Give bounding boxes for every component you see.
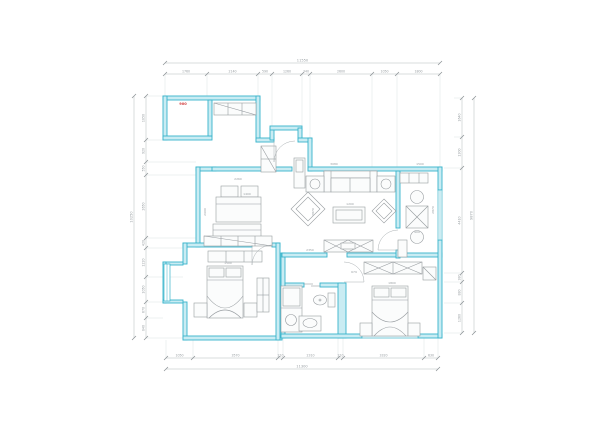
dining-table xyxy=(216,197,261,222)
svg-text:1050: 1050 xyxy=(175,354,183,358)
svg-text:1760: 1760 xyxy=(182,70,190,74)
svg-text:920: 920 xyxy=(142,148,146,154)
svg-text:550: 550 xyxy=(142,165,146,171)
coffee-table xyxy=(333,207,365,223)
svg-text:420: 420 xyxy=(142,240,146,246)
wall-foyer-left xyxy=(163,96,167,140)
dining-bench xyxy=(213,224,261,237)
svg-text:1050: 1050 xyxy=(380,70,388,74)
bath-sink xyxy=(299,316,321,331)
dim-chain-right: 16401300441038088012609870 xyxy=(444,96,476,335)
bedroom1-nightstand-1 xyxy=(194,303,207,317)
rug-diamond xyxy=(291,192,325,226)
master-nightstand-1 xyxy=(360,323,372,336)
wall-entry-alcove-top xyxy=(270,126,302,130)
bath-sliding-door xyxy=(304,284,320,286)
svg-text:1220: 1220 xyxy=(142,258,146,266)
svg-text:11300: 11300 xyxy=(296,365,308,369)
wall-right-wall-b xyxy=(438,240,442,338)
svg-text:210: 210 xyxy=(277,354,283,358)
side-table-right xyxy=(377,176,395,192)
tv-cabinet xyxy=(324,240,373,252)
svg-text:2870: 2870 xyxy=(431,206,435,214)
svg-text:2140: 2140 xyxy=(228,70,236,74)
svg-text:11550: 11550 xyxy=(297,59,309,63)
svg-text:900: 900 xyxy=(414,230,420,234)
foyer-wardrobe xyxy=(214,103,256,115)
svg-text:1500: 1500 xyxy=(224,261,232,265)
svg-text:590: 590 xyxy=(262,70,268,74)
sofa xyxy=(324,171,377,192)
svg-text:1800: 1800 xyxy=(414,70,422,74)
tearoom-side-cabinet xyxy=(398,240,407,257)
svg-text:679: 679 xyxy=(351,270,357,274)
side-table-left xyxy=(306,176,324,192)
bedroom1-nightstand-2 xyxy=(244,303,257,317)
corridor-tall-cabinet xyxy=(294,158,305,188)
wall-bedroom1-left-b xyxy=(183,302,187,340)
svg-text:3870: 3870 xyxy=(311,208,315,216)
toilet xyxy=(314,293,336,307)
svg-text:1800: 1800 xyxy=(388,281,396,285)
svg-text:1260: 1260 xyxy=(458,314,462,322)
wall-dining-top xyxy=(212,167,292,171)
svg-text:1640: 1640 xyxy=(458,113,462,121)
dim-chain-bottom: 105035702102310210332063011300 xyxy=(164,338,440,371)
dim-chain-top: 17602140590126034026001050180011550 xyxy=(163,59,442,172)
svg-text:3570: 3570 xyxy=(231,354,239,358)
svg-text:2600: 2600 xyxy=(337,70,345,74)
wall-tearoom-partition-a xyxy=(396,171,400,228)
svg-text:1500: 1500 xyxy=(416,162,424,166)
svg-text:900: 900 xyxy=(179,102,187,106)
svg-text:2310: 2310 xyxy=(306,354,314,358)
entry-red-tag: 900 xyxy=(179,102,187,106)
bedroom1-bed xyxy=(207,266,243,318)
floorplan-page: 1760214059012603402600105018001155010503… xyxy=(0,0,600,433)
tearoom-door xyxy=(378,230,398,250)
plant-diamond xyxy=(372,199,396,223)
tearoom-chair-1 xyxy=(411,191,424,204)
master-ac xyxy=(423,267,436,280)
svg-text:670: 670 xyxy=(142,307,146,313)
svg-text:1400: 1400 xyxy=(243,192,251,196)
svg-text:2650: 2650 xyxy=(142,202,146,210)
svg-text:630: 630 xyxy=(428,354,434,358)
svg-text:380: 380 xyxy=(458,274,462,280)
bedroom1-wardrobe xyxy=(257,278,269,312)
dining-chair-1 xyxy=(221,186,238,197)
wall-south-wall-a xyxy=(281,334,362,338)
svg-text:3080: 3080 xyxy=(330,162,338,166)
wall-dining-left xyxy=(196,167,200,247)
svg-text:10250: 10250 xyxy=(130,211,134,223)
wall-foyer-right xyxy=(256,96,260,142)
wall-bedroom1-bottom xyxy=(183,336,282,340)
svg-text:840: 840 xyxy=(142,325,146,331)
wall-bedroom1-left-a xyxy=(183,243,187,264)
svg-text:210: 210 xyxy=(337,354,343,358)
master-bed xyxy=(372,286,408,336)
svg-text:1300: 1300 xyxy=(458,148,462,156)
wall-right-wall-a xyxy=(438,167,442,190)
wall-bath-master-wall xyxy=(338,283,346,338)
svg-text:1260: 1260 xyxy=(283,70,291,74)
svg-text:1200: 1200 xyxy=(346,202,354,206)
wall-living-south-a xyxy=(282,253,327,257)
wall-bedroom1-right xyxy=(276,243,280,340)
floor-plan-svg: 1760214059012603402600105018001155010503… xyxy=(0,0,600,433)
svg-text:4410: 4410 xyxy=(458,216,462,224)
svg-text:1050: 1050 xyxy=(142,285,146,293)
master-wardrobe xyxy=(364,262,422,274)
wall-corridor-right xyxy=(308,138,312,171)
wall-storage-bottom xyxy=(163,136,212,140)
svg-text:1850: 1850 xyxy=(142,114,146,122)
entry-door xyxy=(274,141,295,162)
svg-text:2260: 2260 xyxy=(234,177,242,181)
wall-living-south-b xyxy=(347,253,442,257)
svg-text:9870: 9870 xyxy=(470,210,474,220)
svg-text:2350: 2350 xyxy=(306,248,314,252)
svg-text:880: 880 xyxy=(458,289,462,295)
svg-text:340: 340 xyxy=(303,70,309,74)
dining-sideboard xyxy=(204,236,272,246)
svg-text:2600: 2600 xyxy=(203,208,207,216)
wall-living-top xyxy=(308,167,442,171)
svg-text:3320: 3320 xyxy=(379,354,387,358)
tearoom-cabinet xyxy=(400,173,428,183)
master-nightstand-2 xyxy=(408,323,420,336)
tearoom-table xyxy=(406,206,428,228)
wall-foyer-top xyxy=(163,96,260,100)
wall-storage-divider xyxy=(208,100,212,136)
